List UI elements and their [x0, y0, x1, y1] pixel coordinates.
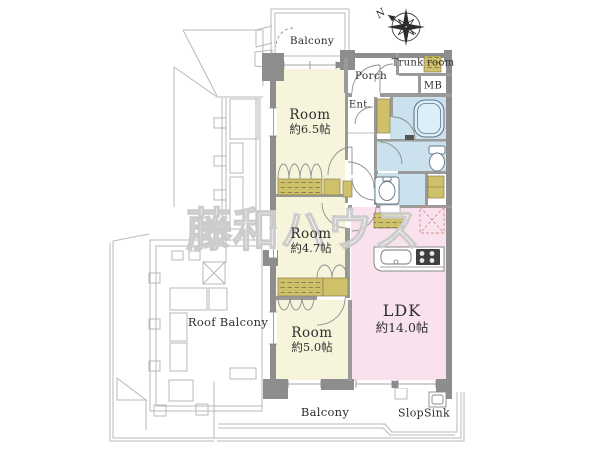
trunk-room-label: Trunk room: [392, 58, 455, 69]
washbasin-icon: [375, 177, 399, 204]
room-2-label: Room 約4.7帖: [290, 226, 331, 256]
room-3-name: Room: [291, 325, 332, 341]
stove-icon: [416, 249, 440, 265]
room-1-size: 約6.5帖: [289, 123, 330, 137]
toilet-icon: [429, 146, 445, 171]
compass-icon: [387, 8, 425, 46]
meter-box-label: MB: [424, 81, 442, 92]
bathtub-icon: [414, 100, 444, 137]
porch-label: Porch: [355, 70, 387, 82]
room-3-label: Room 約5.0帖: [291, 325, 332, 355]
room-3-size: 約5.0帖: [291, 341, 332, 355]
room-2-size: 約4.7帖: [290, 242, 331, 256]
ldk-size: 約14.0帖: [376, 320, 429, 335]
room-2-name: Room: [290, 226, 331, 242]
balcony-bottom-label: Balcony: [301, 405, 349, 419]
room-1-name: Room: [289, 107, 330, 123]
slop-sink-label: SlopSink: [398, 407, 450, 420]
slop-sink-icon: [429, 392, 446, 407]
room-1-label: Room 約6.5帖: [289, 107, 330, 137]
floor-plan-drawing: [0, 0, 600, 450]
ldk-name: LDK: [376, 301, 429, 320]
entrance-label: Ent.: [349, 100, 371, 111]
roof-balcony-label: Roof Balcony: [188, 315, 268, 329]
kitchen-sink-icon: [381, 250, 411, 264]
balcony-top-label: Balcony: [290, 35, 334, 47]
floor-plan: Balcony Porch Trunk room MB Ent. Room 約6…: [0, 0, 600, 450]
ldk-label: LDK 約14.0帖: [376, 301, 429, 335]
kitchen-counter: [374, 247, 444, 271]
